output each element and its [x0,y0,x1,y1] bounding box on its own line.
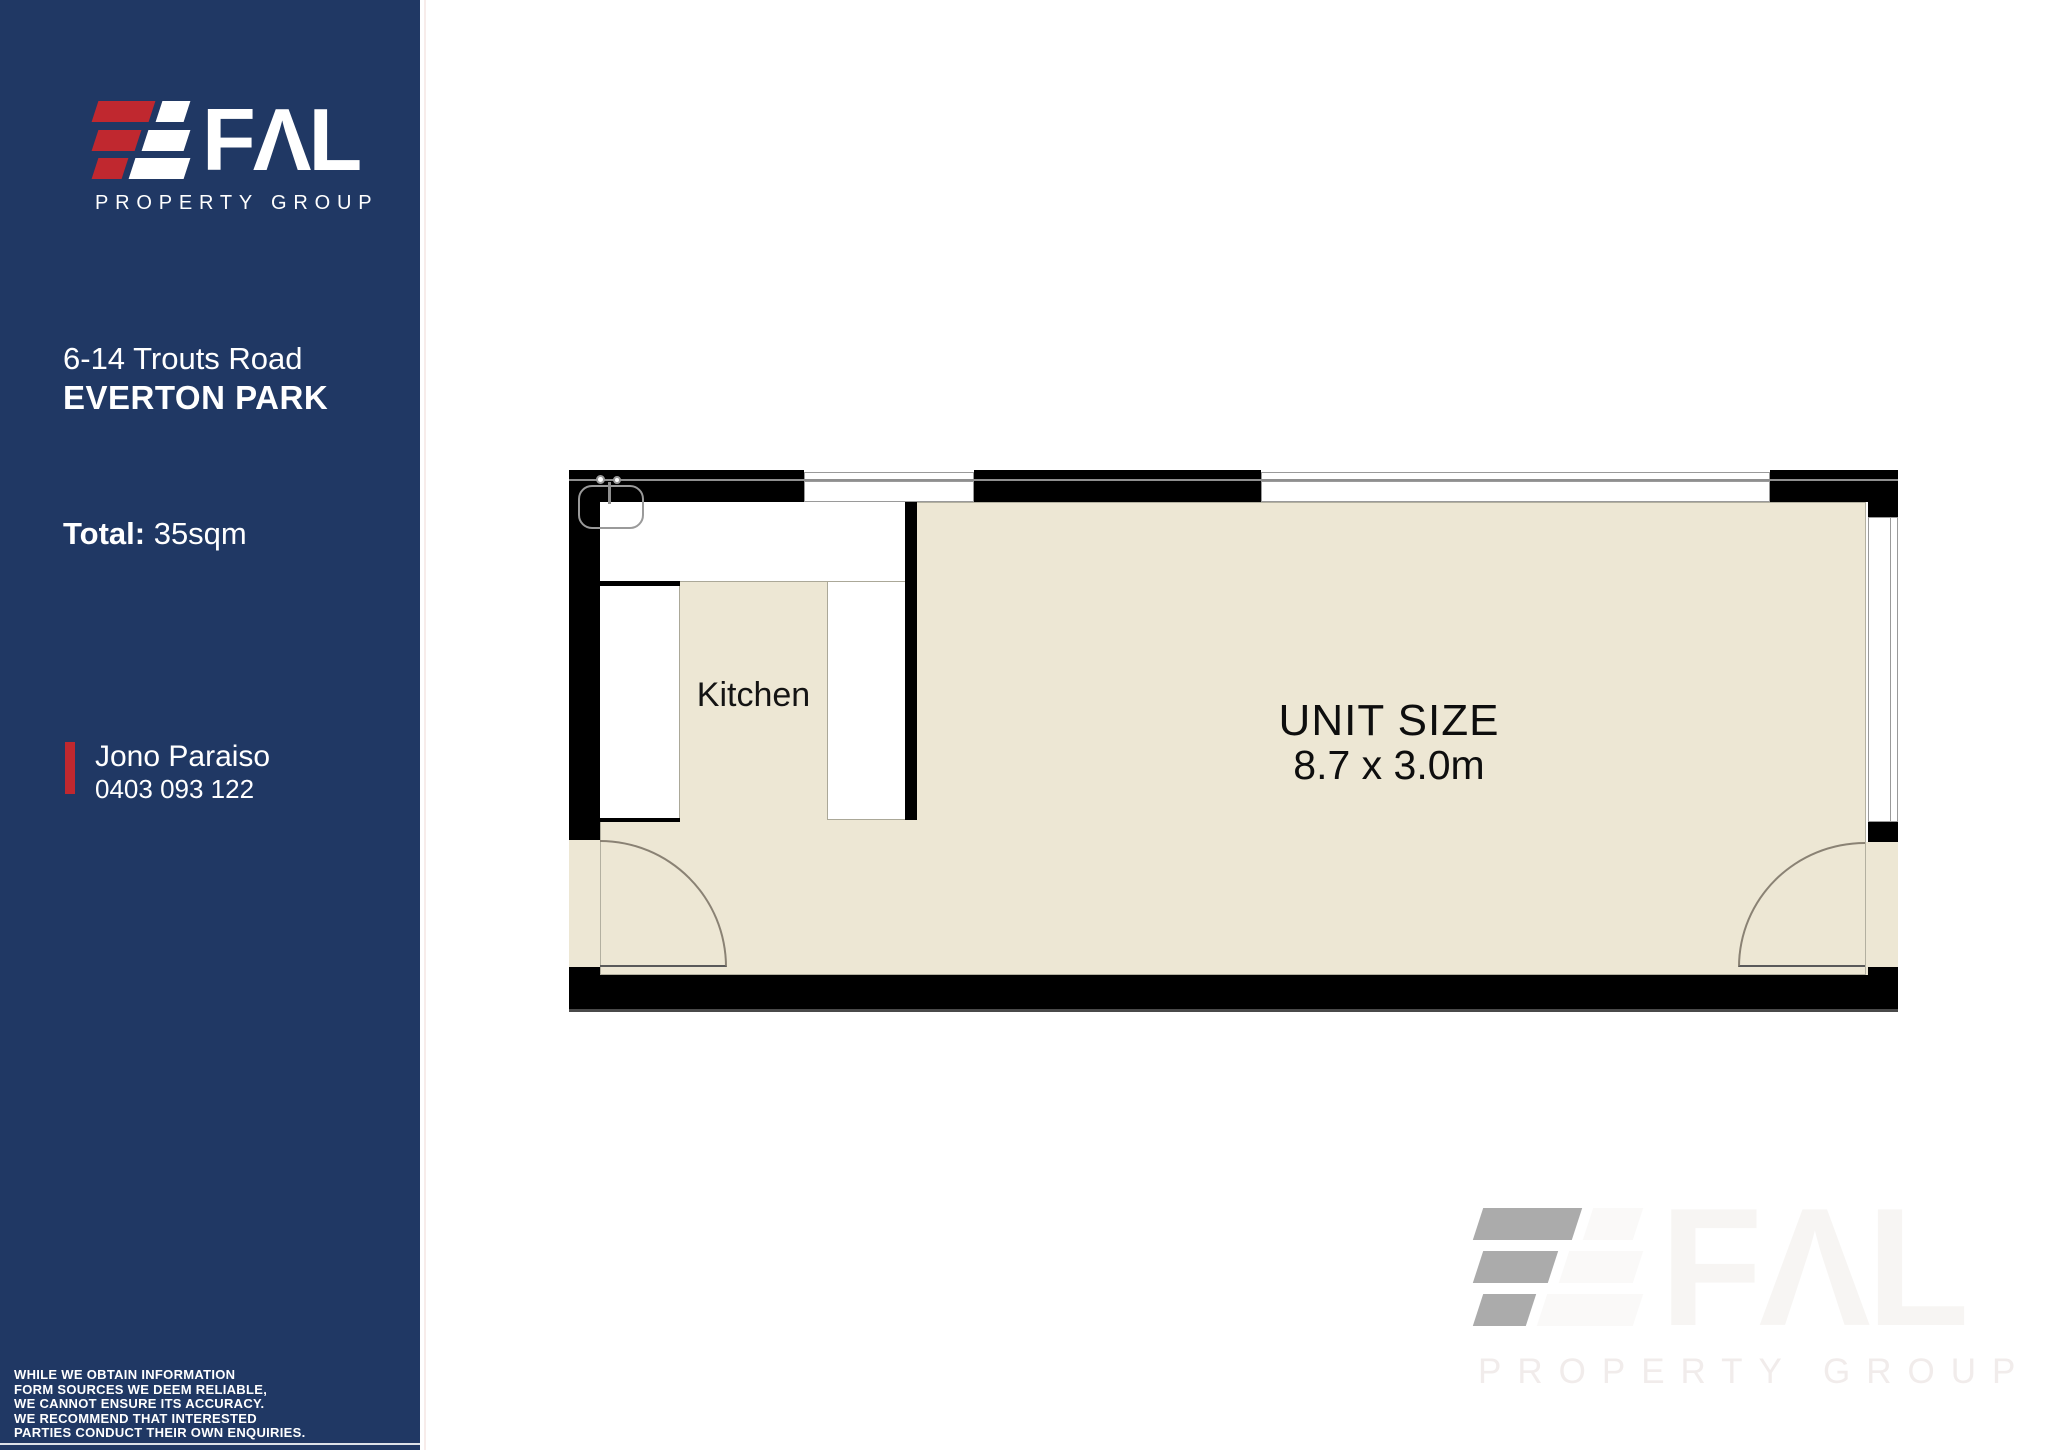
fal-watermark-tagline: PROPERTY GROUP [1478,1352,2031,1392]
wall-right-mid [1868,822,1898,842]
unit-size-title: UNIT SIZE [1069,698,1709,744]
fal-wordmark: FΛL [202,101,359,179]
address-street: 6-14 Trouts Road [63,341,303,377]
fal-logo: FΛL [95,101,359,179]
window-top-2 [1261,472,1770,502]
kitchen-bench-left [600,586,680,818]
total-label: Total: [63,516,145,551]
kitchen-counter [600,502,905,582]
fal-watermark-wordmark: FΛL [1660,1208,1965,1326]
disclaimer: WHILE WE OBTAIN INFORMATION FORM SOURCES… [14,1368,306,1441]
disclaimer-line: FORM SOURCES WE DEEM RELIABLE, [14,1383,306,1398]
address-suburb: EVERTON PARK [63,379,328,417]
window-mullion [1262,481,1769,482]
disclaimer-line: WE RECOMMEND THAT INTERESTED [14,1412,306,1427]
right-door-threshold [1866,842,1898,975]
agent-accent-bar [65,742,75,794]
window-right [1868,517,1898,822]
floorplan: Kitchen UNIT SIZE 8.7 x 3.0m [569,470,1898,1009]
wall-top-3 [1770,470,1898,502]
wall-corner-top-right [1868,500,1898,517]
disclaimer-line: WE CANNOT ENSURE ITS ACCURACY. [14,1397,306,1412]
disclaimer-line: PARTIES CONDUCT THEIR OWN ENQUIRIES. [14,1426,306,1441]
wall-top-2 [974,470,1261,502]
wall-bottom [569,975,1898,1009]
kitchen-label: Kitchen [680,676,827,715]
window-top-1 [804,472,974,502]
sidebar-separator [424,0,426,1450]
total-value: 35sqm [154,516,247,551]
unit-size-label: UNIT SIZE 8.7 x 3.0m [1069,698,1709,786]
kitchen-bench-right [827,582,905,820]
fal-watermark: FΛL PROPERTY GROUP [1478,1208,2031,1392]
total-area: Total: 35sqm [63,516,247,552]
window-mullion [805,481,973,482]
disclaimer-line: WHILE WE OBTAIN INFORMATION [14,1368,306,1383]
plan-shadow [569,1009,1898,1012]
left-door-threshold [569,840,600,975]
fal-watermark-stripes-icon [1478,1208,1638,1326]
fal-tagline: PROPERTY GROUP [95,192,378,215]
agent-name: Jono Paraiso [95,740,270,774]
fal-logo-stripes-icon [95,101,187,179]
agent-phone: 0403 093 122 [95,774,254,805]
sidebar-panel: FΛL PROPERTY GROUP 6-14 Trouts Road EVER… [0,0,420,1450]
kitchen-divider-wall [905,502,917,820]
window-mullion [1890,518,1891,821]
kitchen-wall-lower [600,818,680,822]
sidebar-bottom-rule [0,1443,420,1445]
unit-size-dimensions: 8.7 x 3.0m [1069,744,1709,786]
